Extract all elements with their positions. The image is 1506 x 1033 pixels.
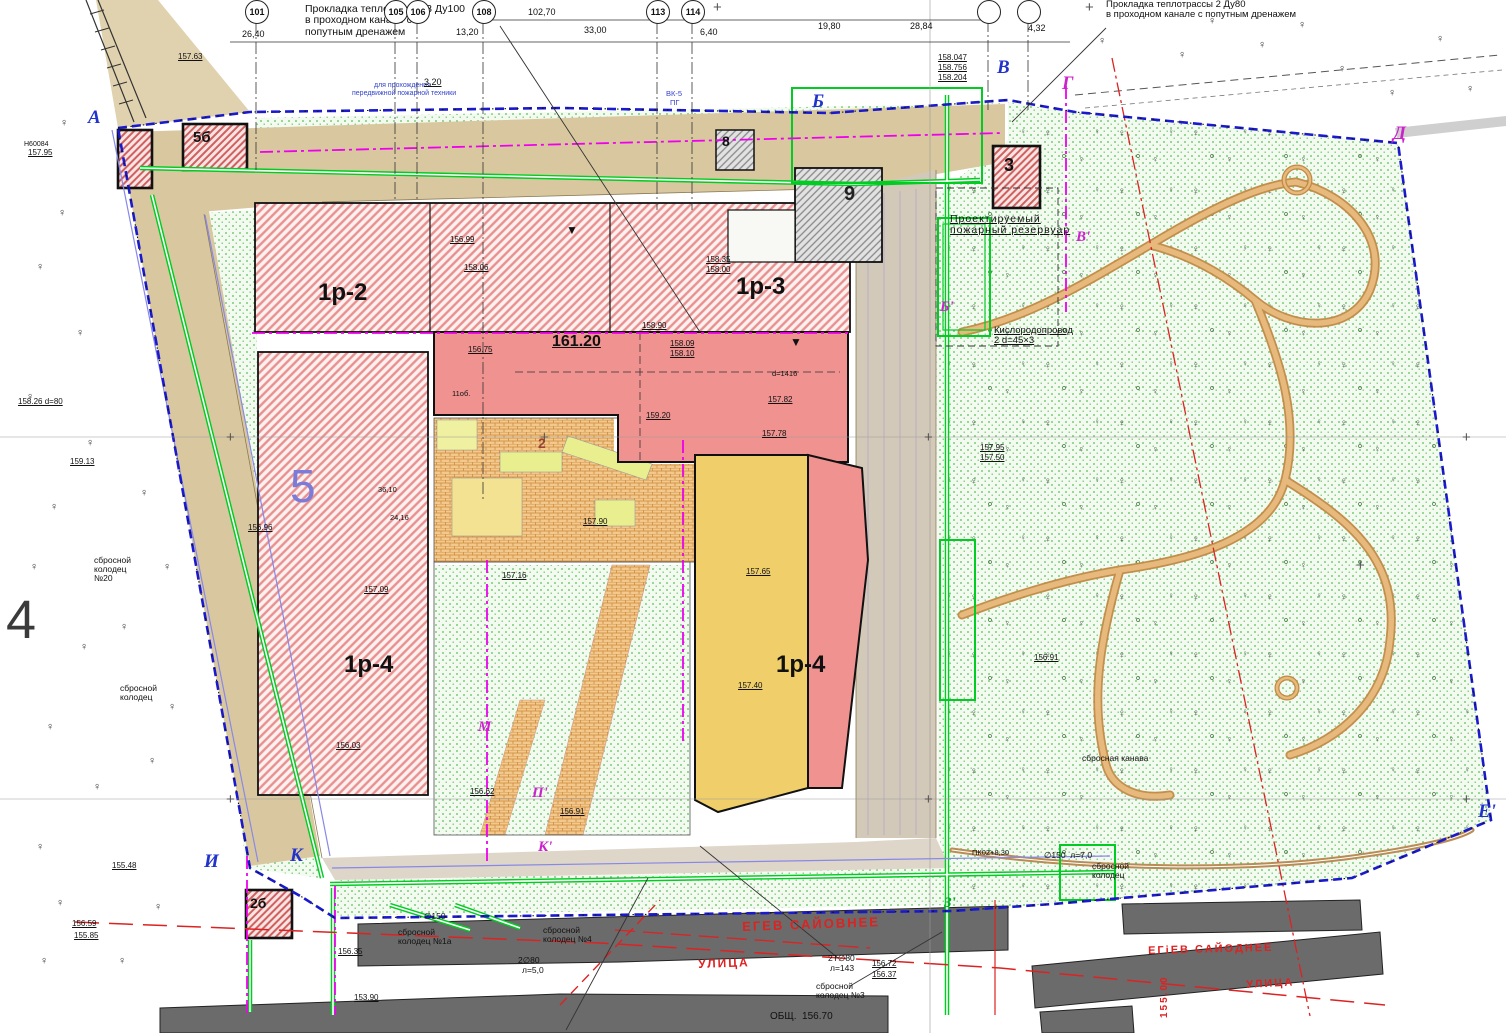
survey-cross: + (540, 430, 549, 446)
tree-symbol: ♀ (36, 842, 44, 854)
annotation: 2∅80 (518, 956, 540, 965)
axis-bubble (977, 0, 1001, 24)
annotation: ▼ (566, 224, 578, 237)
elevation-mark: 157.50 (980, 454, 1004, 462)
tree-symbol: ♀ (40, 956, 48, 968)
building-label: 2б (250, 896, 266, 911)
building-label: 5б (193, 130, 211, 146)
elevation-mark: 158.06 (464, 264, 488, 272)
elevation-mark: 153.90 (354, 994, 378, 1002)
tree-symbol: ♀ (1258, 40, 1266, 52)
elevation-mark: 157.40 (738, 682, 762, 690)
elevation-mark: 157.95 (980, 444, 1004, 452)
section-marker: З' (944, 896, 956, 912)
tree-symbol: ♀ (46, 722, 54, 734)
tree-symbol: ♀ (1098, 36, 1106, 48)
tree-symbol: ♀ (26, 392, 34, 404)
tree-symbol: ♀ (140, 488, 148, 500)
annotation: ПГ (670, 99, 679, 107)
elevation-mark: 156.91 (560, 808, 584, 816)
building-label: 1р-2 (318, 280, 367, 305)
tree-symbol: ♀ (76, 328, 84, 340)
elevation-mark: 158.90 (642, 322, 666, 330)
elevation-mark: 155.48 (112, 862, 136, 870)
survey-cross: + (713, 0, 722, 16)
survey-cross: + (924, 430, 933, 446)
annotation: ВК-5 (666, 90, 682, 98)
axis-bubble: 108 (472, 0, 496, 24)
building-label: 9 (844, 184, 855, 205)
annotation: 24,16 (390, 514, 409, 522)
site-plan-drawing: ♀ ♀ ♀ (0, 0, 1506, 1033)
annotation: сбросная канава (1082, 754, 1148, 763)
dimension-label: 26,40 (242, 30, 265, 39)
annotation: ПК02+8,30 (972, 849, 1009, 857)
annotation: ОБЩ. 156.70 (770, 1012, 833, 1023)
tree-symbol: ♀ (58, 208, 66, 220)
dimension-label: 33,00 (584, 26, 607, 35)
annotation: колодец №3 (816, 991, 865, 1000)
building-label: 1р-3 (736, 274, 785, 299)
elevation-mark: 158.756 (938, 64, 967, 72)
tree-symbol: ♀ (1208, 16, 1216, 28)
axis-bubble: 106 (406, 0, 430, 24)
tree-symbol: ♀ (1178, 50, 1186, 62)
tree-symbol: ♀ (50, 502, 58, 514)
annotation: ∅150 (424, 912, 446, 921)
section-marker: П' (532, 786, 548, 802)
tree-symbol: ♀ (93, 782, 101, 794)
label-layer: АБВГДВ'Б'ИКК'МП'З'Е'5б8391р-21р-3161.205… (0, 0, 1506, 1033)
elevation-mark: 155.85 (74, 932, 98, 940)
elevation-mark: 158.047 (938, 54, 967, 62)
tree-symbol: ♀ (36, 262, 44, 274)
annotation: ∅150 л=7,0 (1044, 851, 1092, 860)
building-label: 161.20 (552, 334, 601, 351)
survey-cross: + (1085, 0, 1094, 16)
annotation: 2Т∅80 (828, 954, 855, 963)
annotation: колодец (120, 693, 153, 702)
building-label: 3 (1004, 156, 1014, 175)
tree-symbol: ♀ (86, 438, 94, 450)
street-name: УЛИЦА (1246, 977, 1295, 991)
elevation-mark: 158.204 (938, 74, 967, 82)
elevation-mark: 158.26 d=80 (18, 398, 63, 406)
axis-bubble: 105 (384, 0, 408, 24)
dimension-label: 3,20 (424, 78, 442, 87)
tree-symbol: ♀ (163, 562, 171, 574)
elevation-mark: 157.16 (502, 572, 526, 580)
annotation: для прохождения (374, 82, 431, 89)
survey-cross: + (226, 430, 235, 446)
elevation-mark: 158.35 (706, 256, 730, 264)
annotation: ▼ (790, 336, 802, 349)
elevation-mark: 156.96 (248, 524, 272, 532)
survey-cross: + (924, 792, 933, 808)
annotation: передвижной пожарной техники (352, 90, 456, 97)
tree-symbol: ♀ (168, 702, 176, 714)
dimension-label: 6,40 (700, 28, 718, 37)
dimension-label: 13,20 (456, 28, 479, 37)
annotation: колодец №4 (543, 935, 592, 944)
tree-symbol: ♀ (118, 956, 126, 968)
elevation-mark: 156.99 (450, 236, 474, 244)
elevation-mark: 156.59 (72, 920, 96, 928)
section-marker: К' (538, 840, 552, 856)
tree-symbol: ♀ (1436, 34, 1444, 46)
axis-bubble (1017, 0, 1041, 24)
section-marker: Б (812, 92, 824, 112)
street-name: ЕГЕВ САЙОВНЕЕ (742, 915, 880, 933)
section-marker: Е' (1478, 802, 1496, 822)
elevation-mark: 156.35 (338, 948, 362, 956)
elevation-mark: 157.09 (364, 586, 388, 594)
annotation: 36,10 (378, 486, 397, 494)
elevation-mark: 156.91 (1034, 654, 1058, 662)
elevation-mark: 156.03 (336, 742, 360, 750)
elevation-mark: 156.62 (470, 788, 494, 796)
tree-symbol: ♀ (1388, 88, 1396, 100)
survey-cross: + (1462, 792, 1471, 808)
elevation-mark: 156.37 (872, 971, 896, 979)
dimension-label: 19,80 (818, 22, 841, 31)
section-marker: А (88, 108, 101, 128)
elevation-mark: 157.90 (583, 518, 607, 526)
dimension-label: 28,84 (910, 22, 933, 31)
elevation-mark: 159.13 (70, 458, 94, 466)
section-marker: Д (1393, 124, 1406, 144)
building-label: 1р-4 (344, 652, 393, 677)
survey-cross: + (226, 792, 235, 808)
elevation-mark: 157.78 (762, 430, 786, 438)
survey-cross: + (1356, 558, 1365, 574)
building-label: 8 (722, 134, 730, 149)
annotation: Н60084 (24, 141, 49, 148)
building-label: 5 (290, 462, 316, 510)
building-label: 4 (6, 592, 36, 649)
section-marker: К (290, 846, 303, 866)
annotation: колодец №1а (398, 937, 451, 946)
elevation-mark: 158.10 (670, 350, 694, 358)
tree-symbol: ♀ (56, 898, 64, 910)
tree-symbol: ♀ (154, 902, 162, 914)
annotation: колодец (1092, 871, 1125, 880)
tree-symbol: ♀ (1298, 20, 1306, 32)
section-marker: И (204, 852, 219, 872)
dimension-label: 4,32 (1028, 24, 1046, 33)
section-marker: Б' (940, 300, 954, 316)
section-marker: В' (1076, 230, 1090, 246)
elevation-mark: 157.82 (768, 396, 792, 404)
elevation-mark: 157.63 (178, 53, 202, 61)
elevation-mark: 158.00 (706, 266, 730, 274)
tree-symbol: ♀ (1466, 84, 1474, 96)
elevation-mark: 157.65 (746, 568, 770, 576)
tree-symbol: ♀ (30, 562, 38, 574)
tree-symbol: ♀ (120, 622, 128, 634)
section-marker: В (997, 58, 1010, 78)
street-name: УЛИЦА (698, 956, 750, 970)
annotation: л=5,0 (522, 966, 544, 975)
elevation-mark: 158.09 (670, 340, 694, 348)
elevation-mark: 157.95 (28, 149, 52, 157)
tree-symbol: ♀ (60, 118, 68, 130)
building-label: 1р-4 (776, 652, 825, 677)
annotation: л=143 (830, 964, 854, 973)
section-marker: М (478, 720, 491, 736)
street-name: ЕГіЕВ САЙОДНЕЕ (1148, 943, 1274, 958)
dimension-label: 102,70 (528, 8, 556, 17)
axis-bubble: 113 (646, 0, 670, 24)
tree-symbol: ♀ (1338, 64, 1346, 76)
annotation: №20 (94, 574, 113, 583)
survey-cross: + (1462, 430, 1471, 446)
annotation: d=1416 (772, 370, 797, 378)
tree-symbol: ♀ (148, 756, 156, 768)
elevation-mark: 156.75 (468, 346, 492, 354)
elevation-mark: 156.72 (872, 960, 896, 968)
street-name: 155.00 (1160, 975, 1171, 1018)
section-marker: Г (1062, 74, 1073, 94)
axis-bubble: 114 (681, 0, 705, 24)
axis-bubble: 101 (245, 0, 269, 24)
annotation: 11об. (452, 390, 470, 398)
tree-symbol: ♀ (80, 642, 88, 654)
elevation-mark: 159.20 (646, 412, 670, 420)
